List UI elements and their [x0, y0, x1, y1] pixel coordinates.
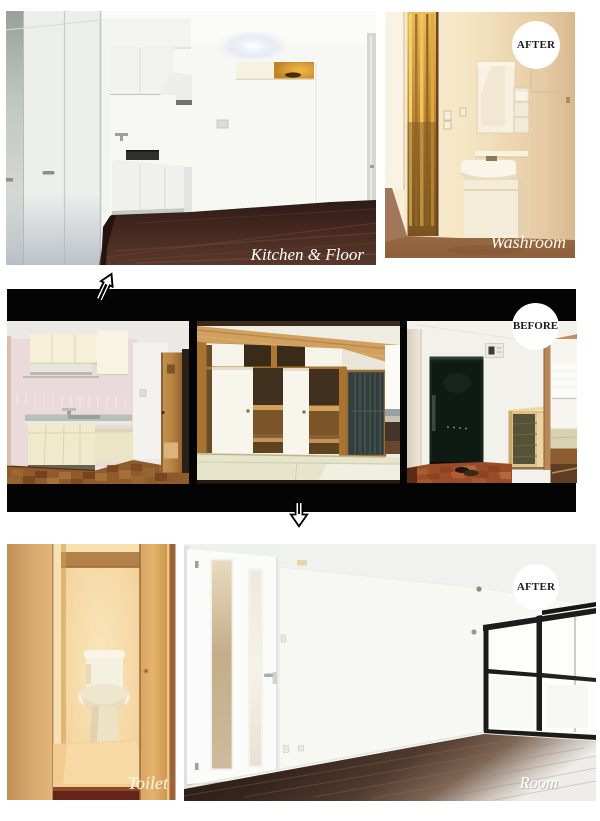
- svg-text:Washroom: Washroom: [490, 232, 566, 252]
- svg-text:Toilet: Toilet: [128, 773, 169, 793]
- svg-text:Kitchen & Floor: Kitchen & Floor: [250, 245, 365, 264]
- svg-text:Room: Room: [519, 773, 559, 792]
